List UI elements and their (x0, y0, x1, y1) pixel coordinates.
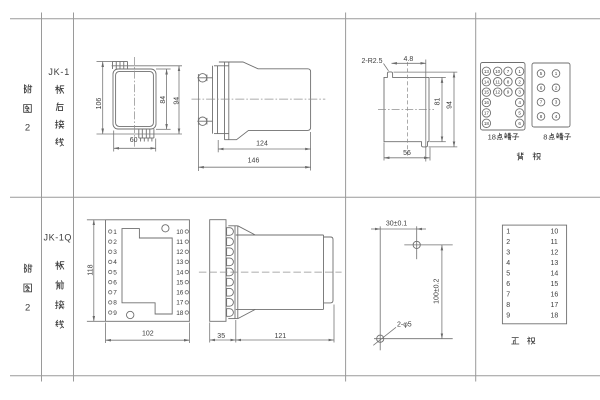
svg-text:1: 1 (555, 71, 558, 76)
svg-text:6: 6 (518, 121, 521, 126)
svg-text:5: 5 (540, 71, 543, 76)
svg-text:3: 3 (555, 100, 558, 105)
svg-text:11: 11 (551, 239, 558, 246)
svg-text:13: 13 (551, 260, 559, 267)
svg-text:JK-1Q: JK-1Q (44, 233, 73, 243)
svg-text:4: 4 (555, 114, 558, 119)
svg-text:7: 7 (113, 290, 117, 297)
svg-text:118: 118 (88, 264, 95, 275)
svg-text:100±0.2: 100±0.2 (433, 278, 440, 303)
svg-text:106: 106 (96, 98, 103, 110)
svg-text:8: 8 (113, 300, 117, 307)
svg-text:17: 17 (176, 300, 184, 307)
svg-text:7: 7 (507, 69, 510, 74)
svg-text:8: 8 (540, 114, 543, 119)
svg-text:14: 14 (176, 269, 184, 276)
svg-text:6: 6 (506, 281, 510, 288)
svg-text:4.8: 4.8 (404, 56, 414, 63)
svg-text:9: 9 (506, 312, 510, 319)
svg-text:14: 14 (551, 271, 559, 278)
svg-text:81: 81 (435, 98, 442, 106)
svg-text:4: 4 (506, 260, 510, 267)
svg-text:124: 124 (256, 141, 268, 148)
svg-text:15: 15 (176, 279, 184, 286)
svg-text:4: 4 (518, 100, 521, 105)
svg-text:94: 94 (173, 97, 180, 105)
svg-text:4: 4 (113, 259, 117, 266)
svg-text:13: 13 (176, 259, 184, 266)
svg-text:18: 18 (176, 310, 184, 317)
svg-text:56: 56 (403, 150, 411, 157)
svg-text:16: 16 (176, 290, 184, 297)
svg-text:10: 10 (551, 229, 559, 236)
svg-text:5: 5 (506, 271, 510, 278)
svg-text:6: 6 (540, 85, 543, 90)
svg-text:9: 9 (507, 90, 510, 95)
svg-text:8: 8 (507, 79, 510, 84)
svg-text:3: 3 (506, 250, 510, 257)
svg-text:18: 18 (551, 312, 559, 319)
svg-text:2-R2.5: 2-R2.5 (361, 58, 382, 65)
svg-text:1: 1 (506, 229, 510, 236)
svg-text:10: 10 (176, 229, 184, 236)
svg-text:JK-1: JK-1 (48, 67, 70, 77)
svg-text:2: 2 (113, 239, 117, 246)
svg-text:9: 9 (113, 310, 117, 317)
svg-text:12: 12 (176, 249, 184, 256)
svg-text:5: 5 (113, 269, 117, 276)
svg-text:17: 17 (484, 111, 490, 116)
svg-text:2: 2 (25, 302, 30, 313)
svg-text:102: 102 (142, 331, 154, 338)
svg-text:35: 35 (217, 333, 225, 340)
svg-text:7: 7 (540, 100, 543, 105)
svg-text:84: 84 (160, 96, 167, 104)
svg-text:18: 18 (484, 121, 490, 126)
svg-text:17: 17 (551, 302, 559, 309)
svg-text:6: 6 (113, 279, 117, 286)
svg-text:146: 146 (248, 158, 260, 165)
svg-text:2-φ5: 2-φ5 (397, 322, 412, 329)
svg-text:1: 1 (518, 69, 521, 74)
svg-text:1: 1 (113, 229, 117, 236)
svg-text:2: 2 (555, 85, 558, 90)
svg-text:2: 2 (518, 79, 521, 84)
svg-text:60: 60 (130, 137, 138, 144)
svg-text:12: 12 (551, 250, 559, 257)
svg-text:18: 18 (488, 133, 496, 142)
svg-text:3: 3 (518, 90, 521, 95)
svg-text:8: 8 (543, 133, 547, 142)
svg-text:5: 5 (518, 111, 521, 116)
svg-text:94: 94 (447, 101, 454, 109)
svg-text:10: 10 (495, 69, 501, 74)
svg-text:7: 7 (506, 292, 510, 299)
svg-text:14: 14 (484, 79, 490, 84)
svg-text:12: 12 (495, 90, 501, 95)
svg-text:3: 3 (113, 249, 117, 256)
svg-text:8: 8 (506, 302, 510, 309)
svg-text:15: 15 (484, 90, 490, 95)
svg-text:16: 16 (551, 292, 559, 299)
svg-text:30±0.1: 30±0.1 (386, 220, 407, 227)
svg-text:2: 2 (506, 239, 510, 246)
svg-text:2: 2 (25, 123, 30, 134)
svg-text:13: 13 (484, 69, 490, 74)
svg-text:15: 15 (551, 281, 559, 288)
svg-text:16: 16 (484, 100, 490, 105)
svg-text:11: 11 (495, 79, 500, 84)
svg-text:11: 11 (176, 239, 183, 246)
svg-text:121: 121 (274, 333, 286, 340)
